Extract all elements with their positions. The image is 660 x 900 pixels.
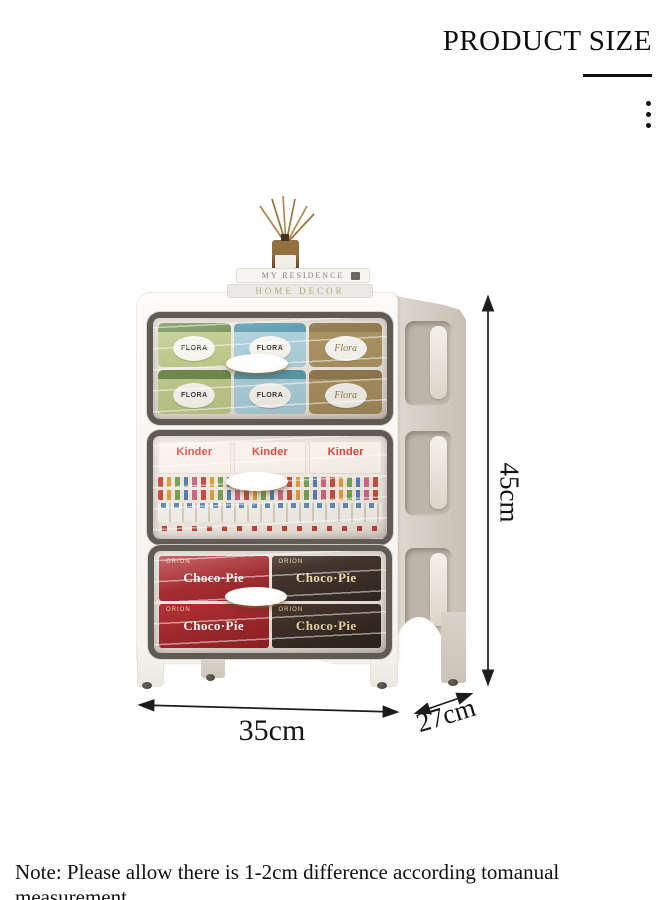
side-handle-grip bbox=[430, 436, 447, 509]
flora-heart: FLORA bbox=[173, 383, 215, 408]
side-arch-cutout bbox=[392, 617, 446, 709]
note-text: Note: Please allow there is 1-2cm differ… bbox=[15, 860, 660, 900]
ellipsis-dot bbox=[646, 101, 651, 106]
orion-label: ORION bbox=[166, 607, 191, 613]
shelf-row: FLORA FLORA Flora bbox=[158, 370, 382, 414]
product-size-page: PRODUCT SIZE FLORA FLORA bbox=[0, 0, 660, 900]
caster-wheel bbox=[377, 682, 387, 689]
flora-label: FLORA bbox=[257, 345, 284, 352]
kinder-logo: Kinder bbox=[176, 446, 212, 458]
orion-label: ORION bbox=[279, 559, 304, 565]
drawer-middle: Kinder Kinder Kinder bbox=[147, 430, 393, 545]
book-title: MY RESIDENCE bbox=[262, 271, 345, 280]
chocopie-label: Choco·Pie bbox=[183, 570, 244, 586]
flora-label: FLORA bbox=[257, 392, 284, 399]
candy-dots-row bbox=[158, 525, 382, 531]
flora-tub: FLORA bbox=[234, 370, 307, 414]
flora-heart: FLORA bbox=[173, 336, 215, 361]
book-logo-mark bbox=[351, 272, 360, 280]
flora-tub: Flora bbox=[309, 370, 382, 414]
side-handle-cutout bbox=[405, 431, 452, 516]
side-handle-grip bbox=[430, 326, 447, 399]
ellipsis-dot bbox=[646, 112, 651, 117]
diffuser-label bbox=[275, 255, 296, 268]
caster-wheel bbox=[448, 679, 458, 686]
flora-script-label: Flora bbox=[334, 343, 357, 354]
flora-label: FLORA bbox=[181, 392, 208, 399]
flora-tub: FLORA bbox=[158, 323, 231, 367]
chocopie-box: ORIONChoco·Pie bbox=[272, 604, 382, 649]
drawer-top: FLORA FLORA Flora FLORA FLORA Flora bbox=[147, 312, 393, 425]
flora-script-label: Flora bbox=[334, 390, 357, 401]
chocopie-box: ORIONChoco·Pie bbox=[272, 556, 382, 601]
orion-label: ORION bbox=[279, 607, 304, 613]
width-label: 35cm bbox=[210, 714, 334, 748]
kinder-box: Kinder bbox=[309, 441, 382, 474]
book-top: MY RESIDENCE bbox=[236, 268, 370, 283]
diffuser-neck bbox=[281, 234, 289, 241]
book-bottom: HOME DECOR bbox=[227, 284, 373, 298]
flora-label: FLORA bbox=[181, 345, 208, 352]
page-title: PRODUCT SIZE bbox=[443, 25, 652, 58]
title-underline bbox=[583, 74, 652, 77]
kinder-box: Kinder bbox=[158, 441, 231, 474]
candy-row bbox=[158, 490, 382, 500]
flora-heart: Flora bbox=[325, 383, 367, 408]
diffuser-bottle bbox=[272, 240, 299, 270]
caster-wheel bbox=[206, 674, 215, 681]
chocopie-label: Choco·Pie bbox=[183, 618, 244, 634]
kinder-logo: Kinder bbox=[328, 446, 364, 458]
chocopie-label: Choco·Pie bbox=[296, 618, 357, 634]
flora-tub: Flora bbox=[309, 323, 382, 367]
drawer-bottom: ORIONChoco·Pie ORIONChoco·Pie ORIONChoco… bbox=[148, 545, 392, 659]
snack-packs-row bbox=[158, 503, 382, 522]
cabinet-side-panel bbox=[386, 294, 466, 658]
drawer-handle bbox=[226, 472, 288, 491]
ellipsis-dot bbox=[646, 123, 651, 128]
book-title: HOME DECOR bbox=[255, 286, 344, 296]
chocopie-box: ORIONChoco·Pie bbox=[159, 604, 269, 649]
drawer-handle bbox=[225, 587, 287, 606]
orion-label: ORION bbox=[166, 559, 191, 565]
drawer-handle bbox=[226, 354, 288, 373]
kinder-box: Kinder bbox=[234, 441, 307, 474]
side-handle-cutout bbox=[405, 321, 452, 406]
vertical-ellipsis-icon bbox=[646, 101, 651, 128]
flora-tub: FLORA bbox=[158, 370, 231, 414]
kinder-box-row: Kinder Kinder Kinder bbox=[158, 441, 382, 474]
cabinet-leg-back bbox=[441, 612, 466, 683]
height-label: 45cm bbox=[494, 447, 525, 539]
chocopie-label: Choco·Pie bbox=[296, 570, 357, 586]
flora-heart: Flora bbox=[325, 336, 367, 361]
flora-heart: FLORA bbox=[249, 383, 291, 408]
kinder-logo: Kinder bbox=[252, 446, 288, 458]
caster-wheel bbox=[142, 682, 152, 689]
